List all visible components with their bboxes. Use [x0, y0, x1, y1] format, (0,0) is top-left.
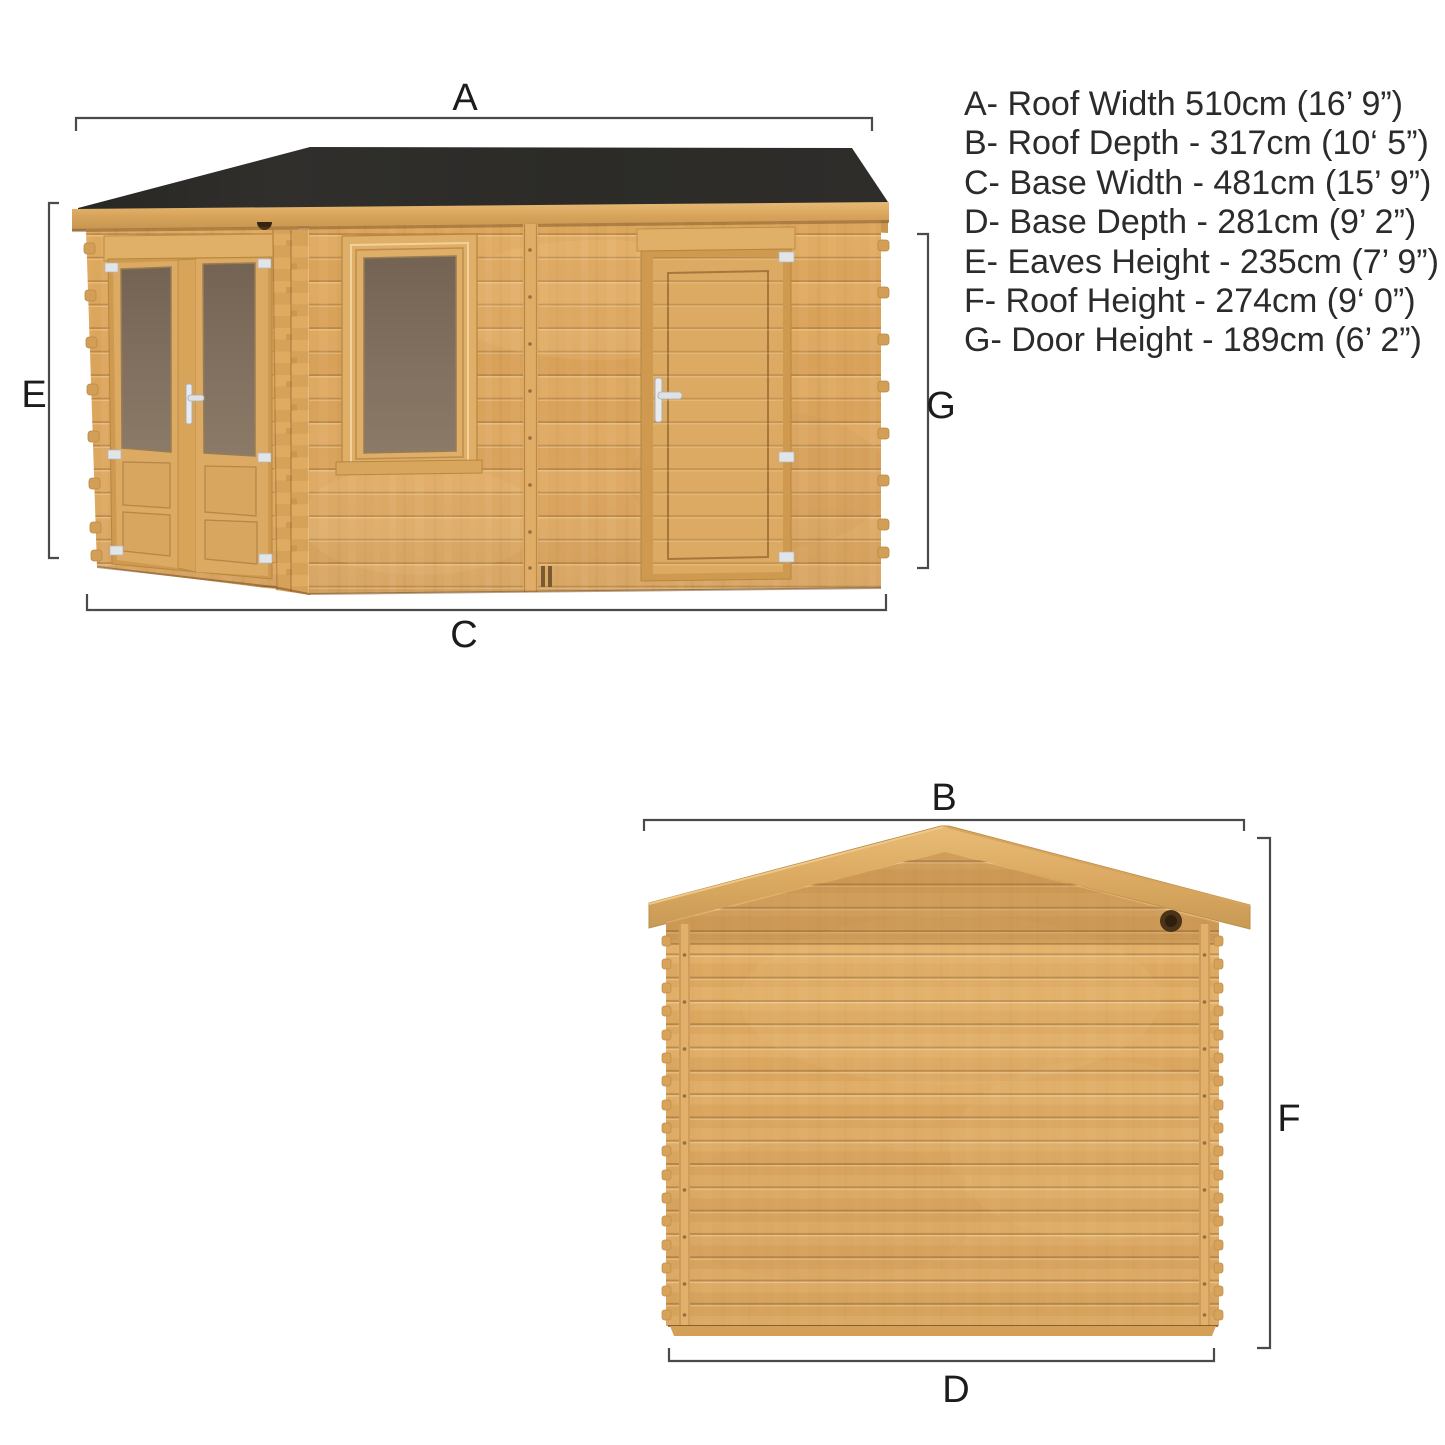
svg-text:E- Eaves Height - 235cm (7’ 9”: E- Eaves Height - 235cm (7’ 9”): [964, 243, 1439, 281]
svg-text:E: E: [21, 374, 46, 416]
svg-text:G- Door Height - 189cm (6’ 2”): G- Door Height - 189cm (6’ 2”): [964, 321, 1422, 359]
svg-text:F- Roof Height - 274cm (9‘ 0”): F- Roof Height - 274cm (9‘ 0”): [964, 282, 1416, 320]
svg-text:C: C: [450, 614, 477, 656]
svg-text:C- Base Width - 481cm (15’ 9”): C- Base Width - 481cm (15’ 9”): [964, 164, 1431, 202]
svg-text:F: F: [1277, 1098, 1300, 1140]
svg-text:B: B: [931, 777, 956, 819]
svg-text:G: G: [926, 385, 956, 427]
svg-text:D: D: [942, 1369, 969, 1411]
svg-text:B- Roof Depth - 317cm (10‘ 5”): B- Roof Depth - 317cm (10‘ 5”): [964, 124, 1429, 162]
svg-text:A- Roof Width 510cm (16’ 9”): A- Roof Width 510cm (16’ 9”): [964, 85, 1403, 123]
svg-text:A: A: [452, 77, 478, 119]
svg-text:D- Base Depth - 281cm (9’ 2”): D- Base Depth - 281cm (9’ 2”): [964, 203, 1416, 241]
